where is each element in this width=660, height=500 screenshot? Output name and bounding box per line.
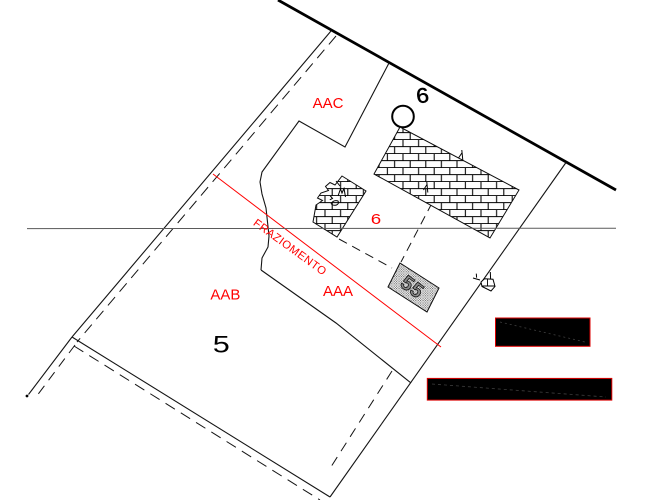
- svg-text:5: 5: [213, 330, 230, 357]
- svg-text:AAA: AAA: [323, 283, 353, 300]
- svg-text:AAC: AAC: [313, 95, 344, 112]
- svg-text:AAB: AAB: [210, 287, 240, 304]
- svg-text:6: 6: [371, 211, 381, 228]
